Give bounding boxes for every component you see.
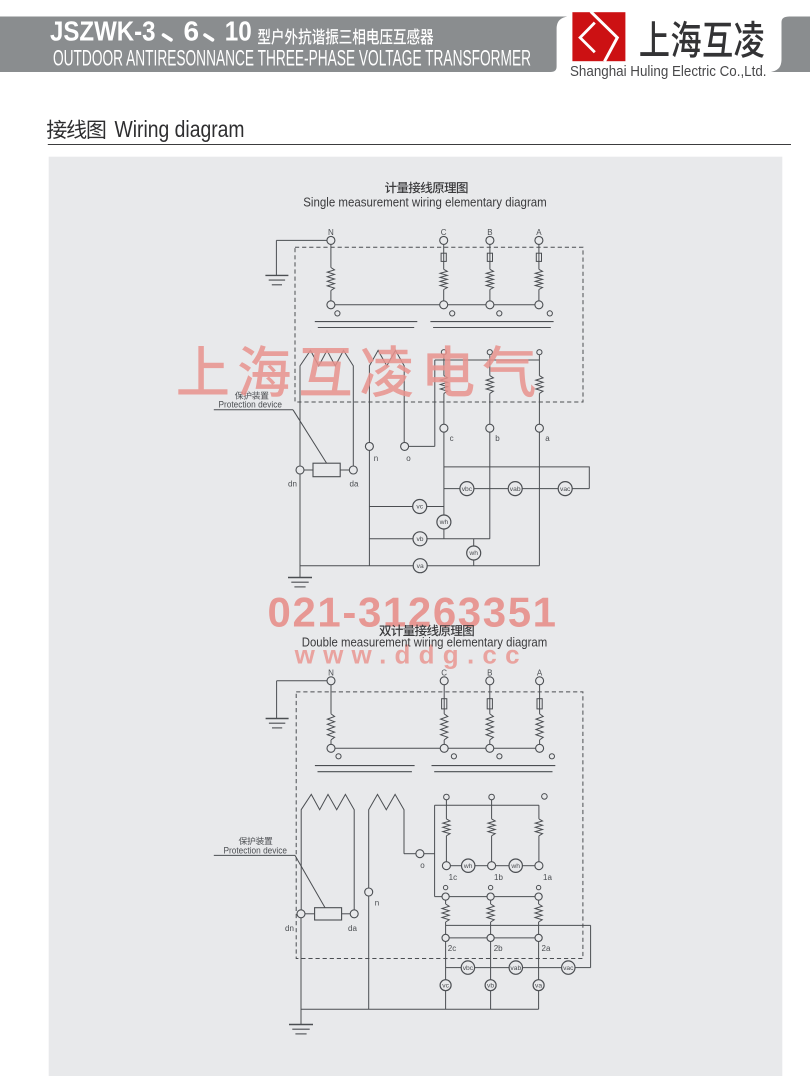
svg-text:B: B [487,228,492,237]
svg-text:va: va [535,982,542,989]
svg-text:021-31263351: 021-31263351 [268,588,558,635]
svg-text:a: a [545,434,550,443]
svg-text:vb: vb [487,982,494,989]
svg-text:o: o [420,861,425,870]
svg-text:N: N [328,668,334,677]
svg-text:vab: vab [510,965,521,972]
svg-text:wh: wh [439,519,449,526]
svg-text:Wiring diagram: Wiring diagram [115,116,245,142]
svg-text:JSZWK-3: JSZWK-3 [50,16,156,47]
svg-text:vac: vac [560,486,571,493]
svg-text:vbc: vbc [463,965,474,972]
svg-text:1b: 1b [494,873,503,882]
svg-text:6: 6 [184,16,200,47]
svg-text:A: A [536,228,542,237]
svg-text:b: b [495,434,500,443]
svg-text:2a: 2a [542,944,551,953]
svg-text:da: da [348,924,357,933]
svg-text:1c: 1c [449,873,457,882]
svg-text:OUTDOOR ANTIRESONNANCE THREE-P: OUTDOOR ANTIRESONNANCE THREE-PHASE VOLTA… [53,45,531,70]
svg-text:da: da [350,480,359,489]
svg-text:vab: vab [510,486,521,493]
svg-text:C: C [441,668,447,677]
svg-text:vc: vc [416,504,423,511]
svg-text:wh: wh [463,863,473,870]
svg-text:va: va [417,563,424,570]
svg-text:1a: 1a [543,873,552,882]
svg-text:B: B [487,668,492,677]
svg-text:c: c [450,434,454,443]
svg-text:Shanghai Huling Electric Co.,L: Shanghai Huling Electric Co.,Ltd. [570,63,767,80]
svg-text:wh: wh [510,863,520,870]
svg-text:wh: wh [468,550,478,557]
svg-text:C: C [441,228,447,237]
svg-text:Single measurement wiring elem: Single measurement wiring elementary dia… [303,195,547,210]
svg-text:Double measurement wiring elem: Double measurement wiring elementary dia… [302,635,548,650]
svg-text:10: 10 [225,16,252,47]
svg-text:vac: vac [563,965,574,972]
svg-text:2c: 2c [448,944,456,953]
svg-text:2b: 2b [494,944,503,953]
svg-text:A: A [537,668,543,677]
svg-text:vbc: vbc [462,486,473,493]
svg-text:dn: dn [288,480,297,489]
svg-text:n: n [374,454,378,463]
svg-text:n: n [375,899,379,908]
svg-text:vc: vc [442,982,449,989]
svg-text:Protection device: Protection device [219,399,283,409]
svg-text:dn: dn [285,924,294,933]
svg-text:N: N [328,228,334,237]
svg-text:vb: vb [416,536,423,543]
svg-text:o: o [406,454,411,463]
svg-text:Protection device: Protection device [224,846,288,856]
